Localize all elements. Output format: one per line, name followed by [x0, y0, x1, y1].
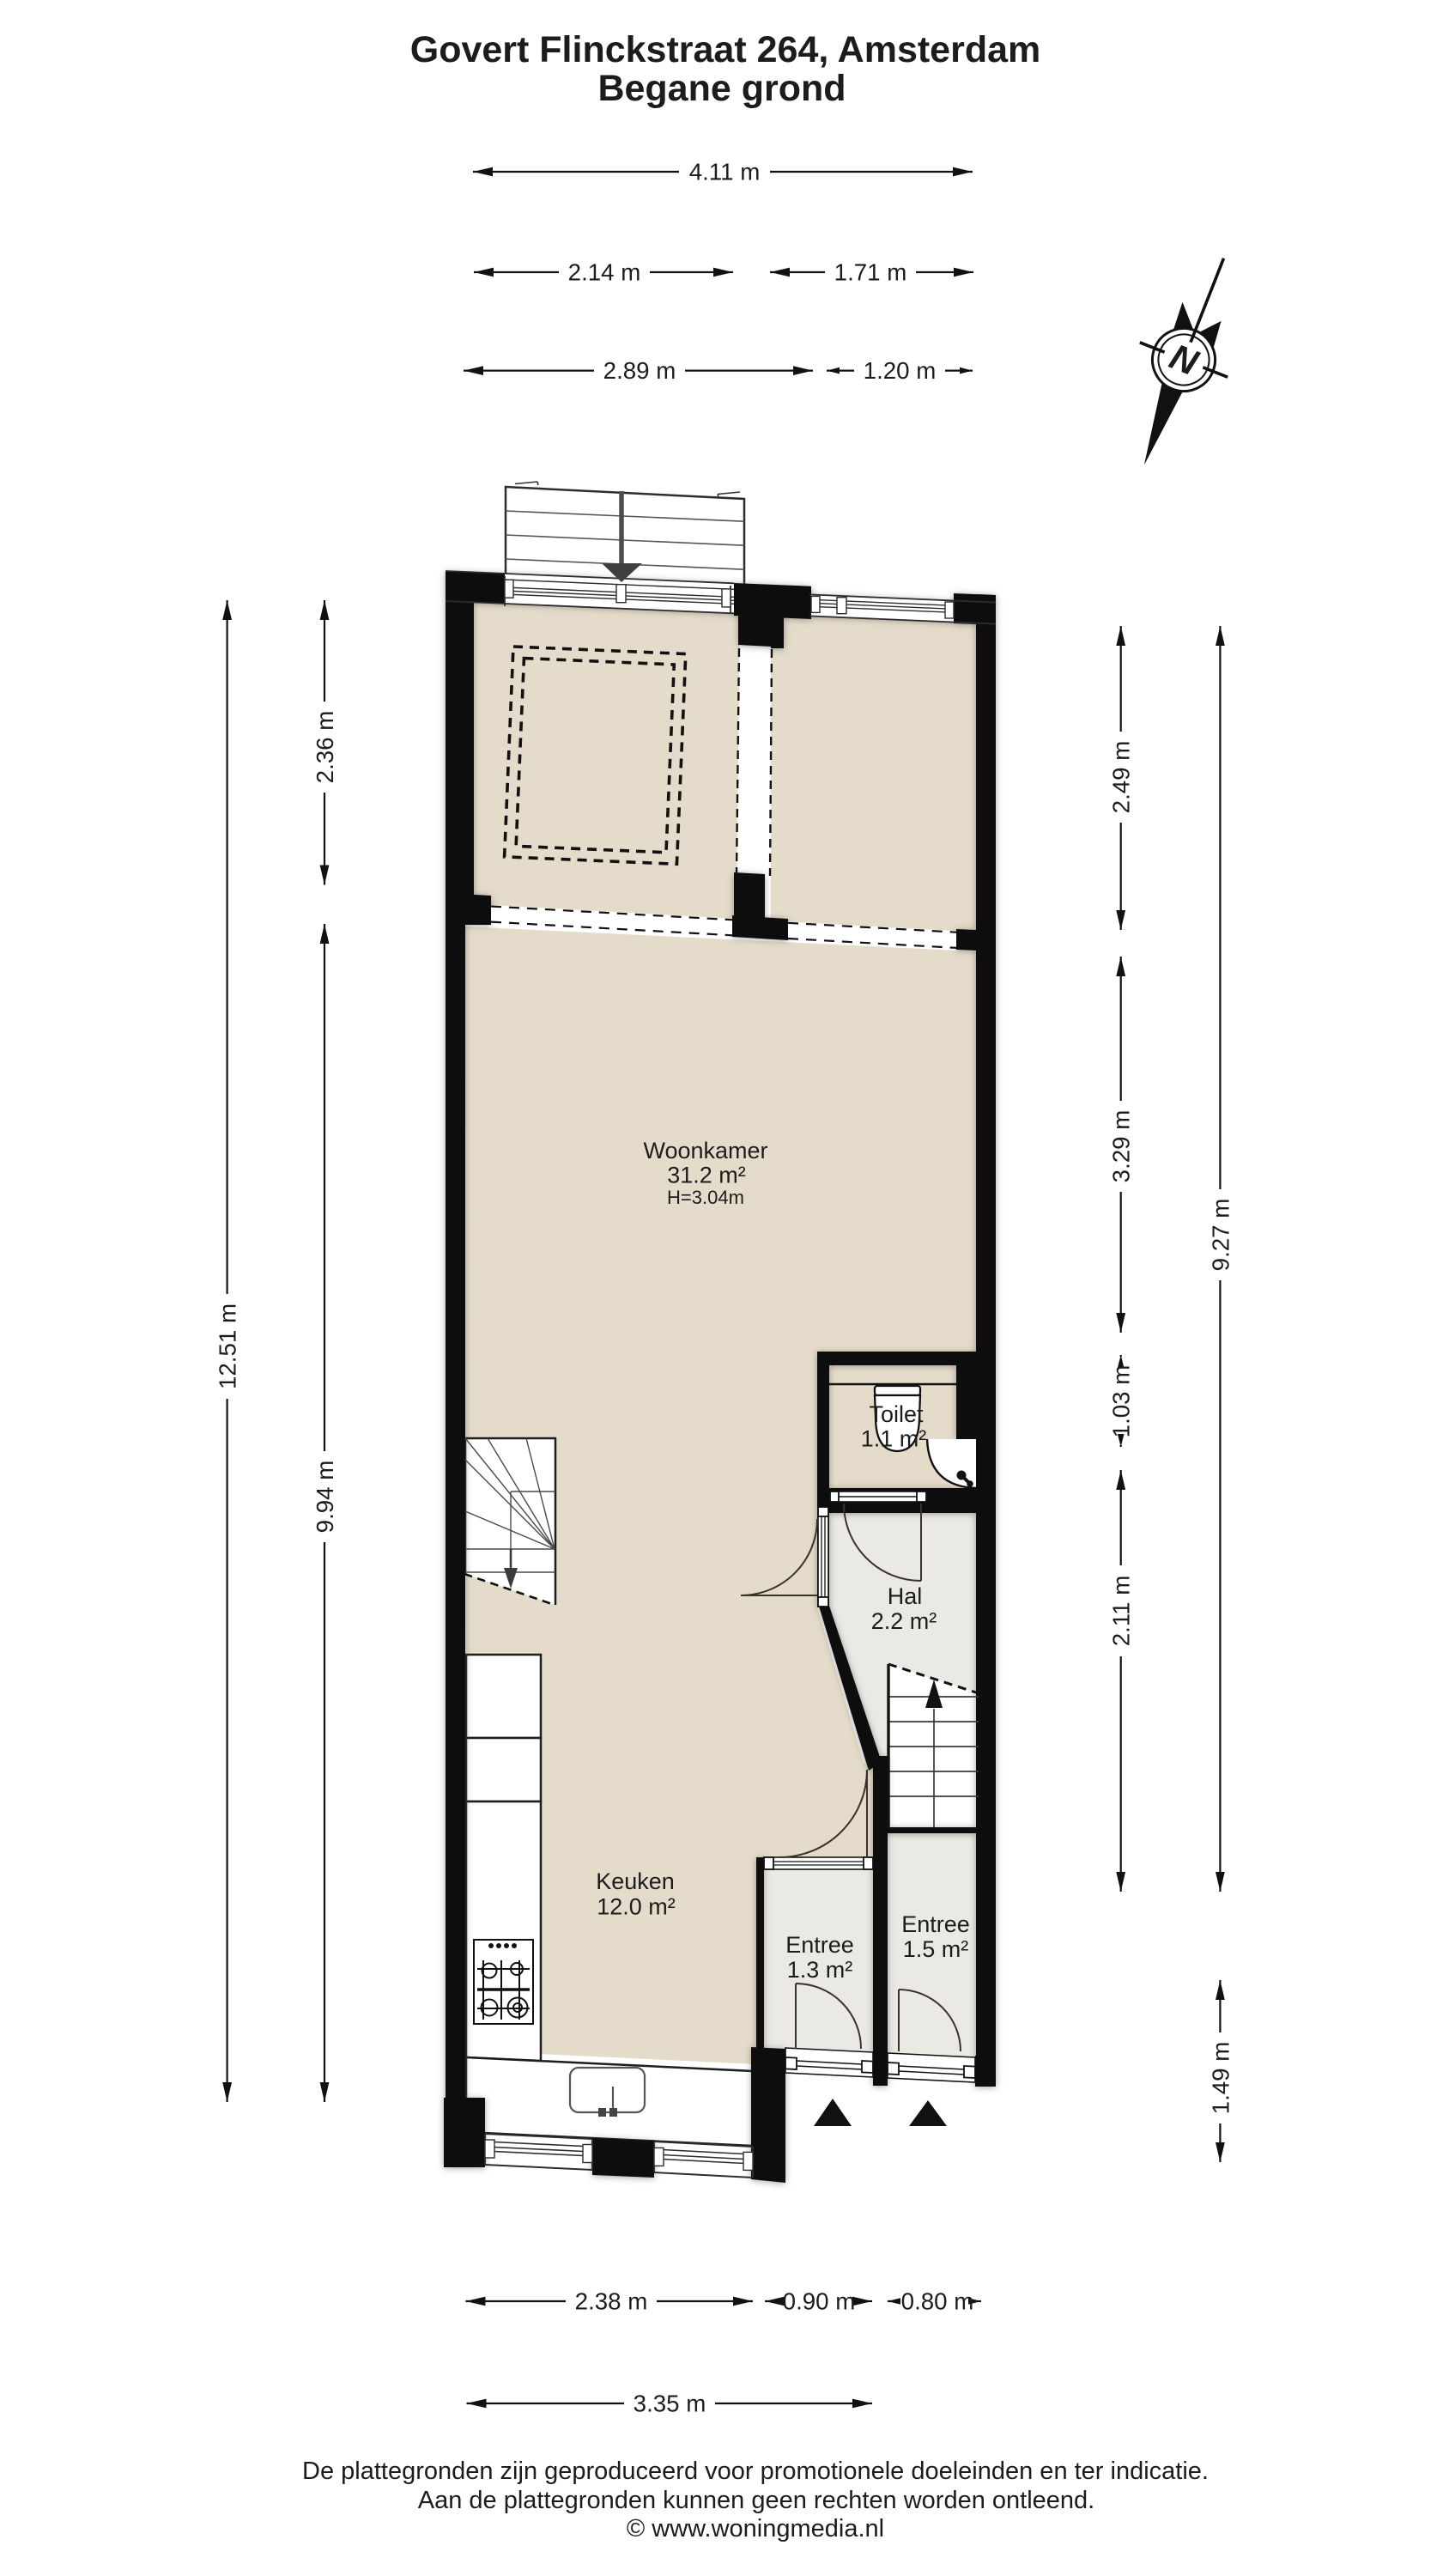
svg-text:1.1 m²: 1.1 m²	[861, 1426, 927, 1452]
svg-text:0.90 m: 0.90 m	[783, 2288, 856, 2315]
svg-text:9.94 m: 9.94 m	[312, 1461, 338, 1534]
svg-text:Aan de plattegronden kunnen ge: Aan de plattegronden kunnen geen rechten…	[418, 2487, 1094, 2514]
svg-text:Woonkamer: Woonkamer	[643, 1138, 767, 1163]
svg-text:Entree: Entree	[901, 1911, 970, 1937]
svg-text:Keuken: Keuken	[596, 1868, 675, 1894]
svg-text:Begane grond: Begane grond	[597, 68, 846, 109]
svg-text:De plattegronden zijn geproduc: De plattegronden zijn geproduceerd voor …	[302, 2458, 1209, 2485]
svg-text:4.11 m: 4.11 m	[689, 159, 761, 185]
svg-text:2.2 m²: 2.2 m²	[871, 1608, 937, 1634]
svg-text:2.89 m: 2.89 m	[603, 357, 676, 384]
svg-text:Hal: Hal	[888, 1583, 923, 1609]
svg-text:31.2 m²: 31.2 m²	[667, 1163, 746, 1188]
svg-text:1.03 m: 1.03 m	[1108, 1365, 1135, 1438]
svg-text:2.11 m: 2.11 m	[1108, 1576, 1135, 1647]
svg-text:H=3.04m: H=3.04m	[667, 1187, 744, 1208]
svg-text:1.3 m²: 1.3 m²	[787, 1957, 853, 1983]
svg-text:Govert Flinckstraat 264, Amste: Govert Flinckstraat 264, Amsterdam	[410, 29, 1041, 70]
svg-text:1.5 m²: 1.5 m²	[903, 1936, 969, 1962]
svg-text:9.27 m: 9.27 m	[1207, 1199, 1234, 1272]
svg-text:12.0 m²: 12.0 m²	[597, 1894, 676, 1920]
svg-text:© www.woningmedia.nl: © www.woningmedia.nl	[627, 2515, 884, 2543]
svg-text:Entree: Entree	[785, 1932, 854, 1958]
svg-text:2.49 m: 2.49 m	[1108, 741, 1135, 814]
svg-text:12.51 m: 12.51 m	[215, 1303, 241, 1389]
svg-text:1.71 m: 1.71 m	[834, 259, 907, 286]
svg-text:2.36 m: 2.36 m	[312, 711, 338, 784]
svg-text:2.38 m: 2.38 m	[575, 2288, 648, 2315]
svg-text:0.80 m: 0.80 m	[901, 2288, 974, 2315]
svg-text:2.14 m: 2.14 m	[568, 259, 641, 286]
svg-text:1.20 m: 1.20 m	[864, 357, 937, 384]
svg-text:1.49 m: 1.49 m	[1207, 2042, 1234, 2115]
svg-text:Toilet: Toilet	[869, 1401, 924, 1427]
svg-text:3.29 m: 3.29 m	[1108, 1110, 1135, 1183]
svg-text:3.35 m: 3.35 m	[634, 2391, 706, 2417]
